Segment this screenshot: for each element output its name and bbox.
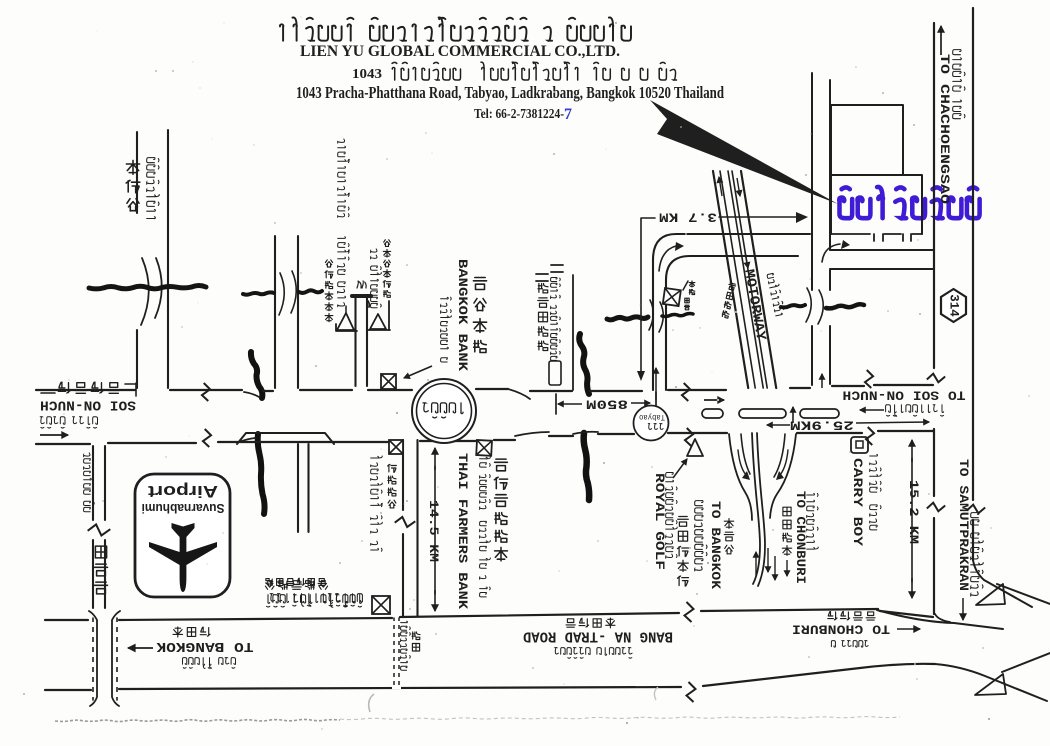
svg-text:Airport: Airport [148, 482, 218, 501]
svg-text:3.7 KM: 3.7 KM [659, 210, 717, 225]
svg-text:14.5 KM: 14.5 KM [426, 500, 441, 562]
svg-text:Tabyao: Tabyao [639, 412, 665, 421]
svg-text:15.2 KM: 15.2 KM [906, 480, 921, 544]
svg-text:BANGKOK BANK: BANGKOK BANK [455, 259, 470, 371]
svg-text:Tel: 66-2-7381224-: Tel: 66-2-7381224- [474, 107, 564, 122]
svg-text:7: 7 [564, 106, 572, 123]
svg-text:LIEN YU GLOBAL COMMERCIAL CO.,: LIEN YU GLOBAL COMMERCIAL CO.,LTD. [300, 43, 620, 60]
svg-text:TO CHACHOENGSAO: TO CHACHOENGSAO [937, 54, 952, 204]
svg-text:Suvarnabhumi: Suvarnabhumi [142, 501, 225, 515]
svg-text:TO SOI ON-NUCH: TO SOI ON-NUCH [843, 388, 966, 403]
svg-text:1043 Pracha-Phatthana Road, Ta: 1043 Pracha-Phatthana Road, Tabyao, Ladk… [296, 83, 724, 102]
svg-text:314: 314 [947, 294, 961, 317]
svg-text:SOI ON-NUCH: SOI ON-NUCH [40, 396, 136, 411]
svg-text:TO BANGKOK: TO BANGKOK [708, 501, 723, 589]
svg-text:TO SAMUTPRAKRAN: TO SAMUTPRAKRAN [956, 459, 971, 591]
svg-text:TO BANGKOK: TO BANGKOK [156, 638, 254, 654]
svg-text:TO CHONBURI: TO CHONBURI [792, 622, 890, 637]
svg-text:CARRY BOY: CARRY BOY [850, 458, 865, 546]
svg-text:25.9KM: 25.9KM [790, 418, 854, 433]
svg-text:BANG NA -TRAD ROAD: BANG NA -TRAD ROAD [523, 627, 673, 644]
svg-text:TO CHONBURI: TO CHONBURI [793, 491, 808, 584]
svg-text:ROYAL GOLF: ROYAL GOLF [652, 473, 667, 570]
svg-text:1043: 1043 [352, 67, 382, 82]
svg-text:THAI FARMERS BANK: THAI FARMERS BANK [455, 453, 470, 609]
svg-text:850M: 850M [586, 397, 628, 412]
